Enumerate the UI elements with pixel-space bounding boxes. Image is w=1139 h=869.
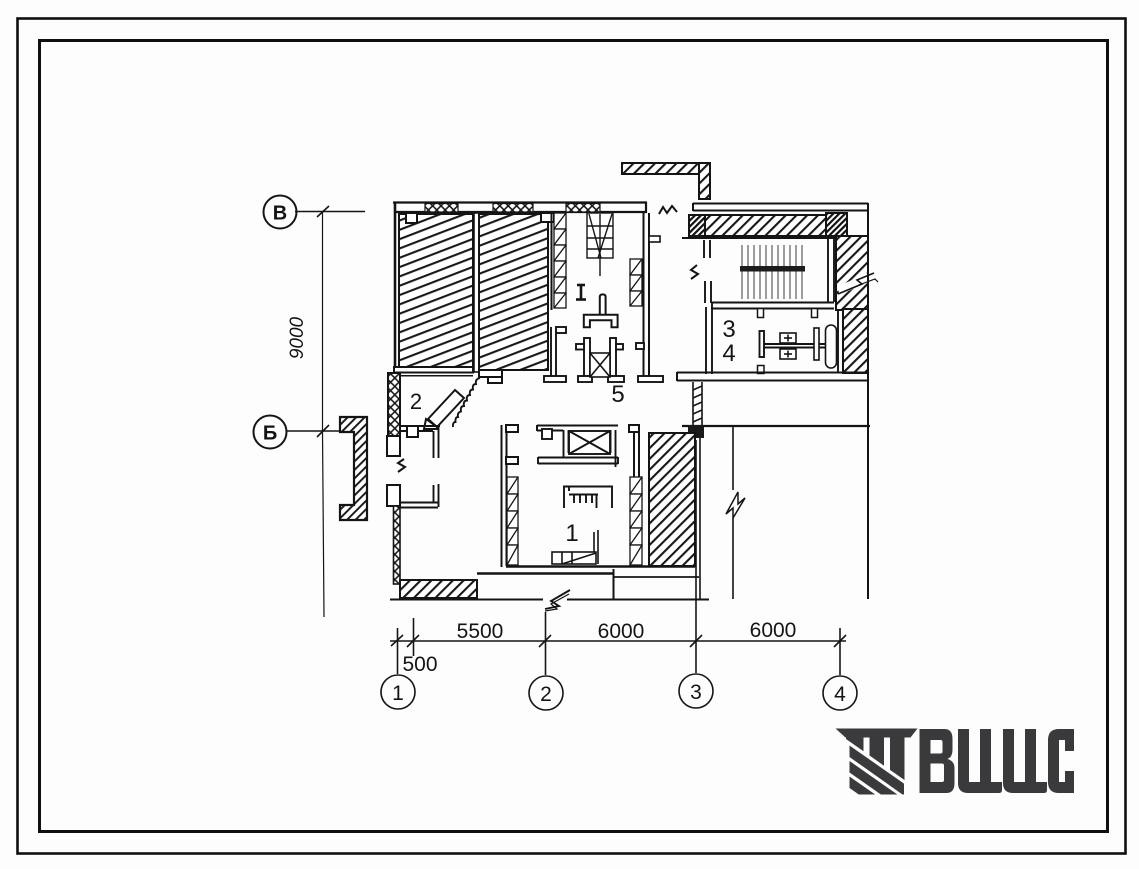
svg-text:500: 500	[402, 653, 437, 676]
svg-text:6000: 6000	[750, 619, 797, 642]
svg-text:4: 4	[722, 340, 735, 367]
svg-text:1: 1	[392, 682, 404, 705]
svg-text:4: 4	[834, 683, 846, 706]
svg-text:9000: 9000	[287, 316, 308, 359]
svg-text:5: 5	[611, 381, 624, 408]
svg-text:6000: 6000	[598, 620, 645, 643]
svg-text:1: 1	[565, 520, 578, 547]
svg-text:3: 3	[722, 316, 735, 343]
svg-text:5500: 5500	[457, 620, 504, 643]
svg-text:3: 3	[690, 681, 702, 704]
svg-text:2: 2	[410, 389, 422, 414]
svg-text:В: В	[273, 203, 287, 225]
svg-text:2: 2	[540, 683, 552, 706]
svg-text:Б: Б	[263, 423, 277, 445]
